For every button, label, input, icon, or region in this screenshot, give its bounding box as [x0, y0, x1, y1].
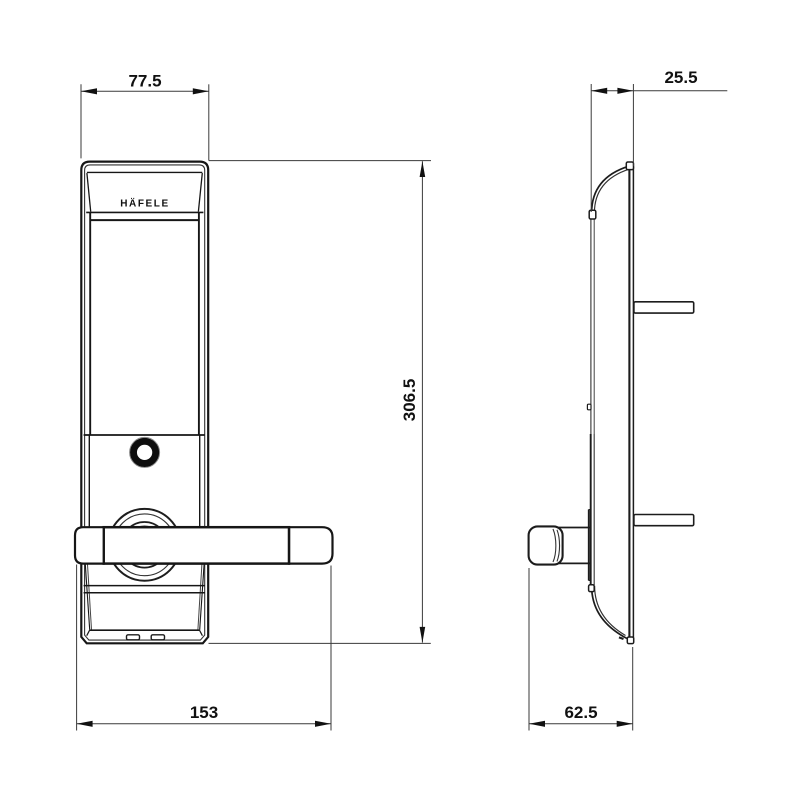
svg-text:153: 153 — [190, 703, 218, 722]
svg-text:77.5: 77.5 — [128, 71, 161, 90]
svg-text:306.5: 306.5 — [400, 379, 419, 422]
svg-text:HÄFELE: HÄFELE — [120, 196, 170, 209]
svg-text:62.5: 62.5 — [564, 703, 597, 722]
svg-text:25.5: 25.5 — [664, 68, 697, 87]
